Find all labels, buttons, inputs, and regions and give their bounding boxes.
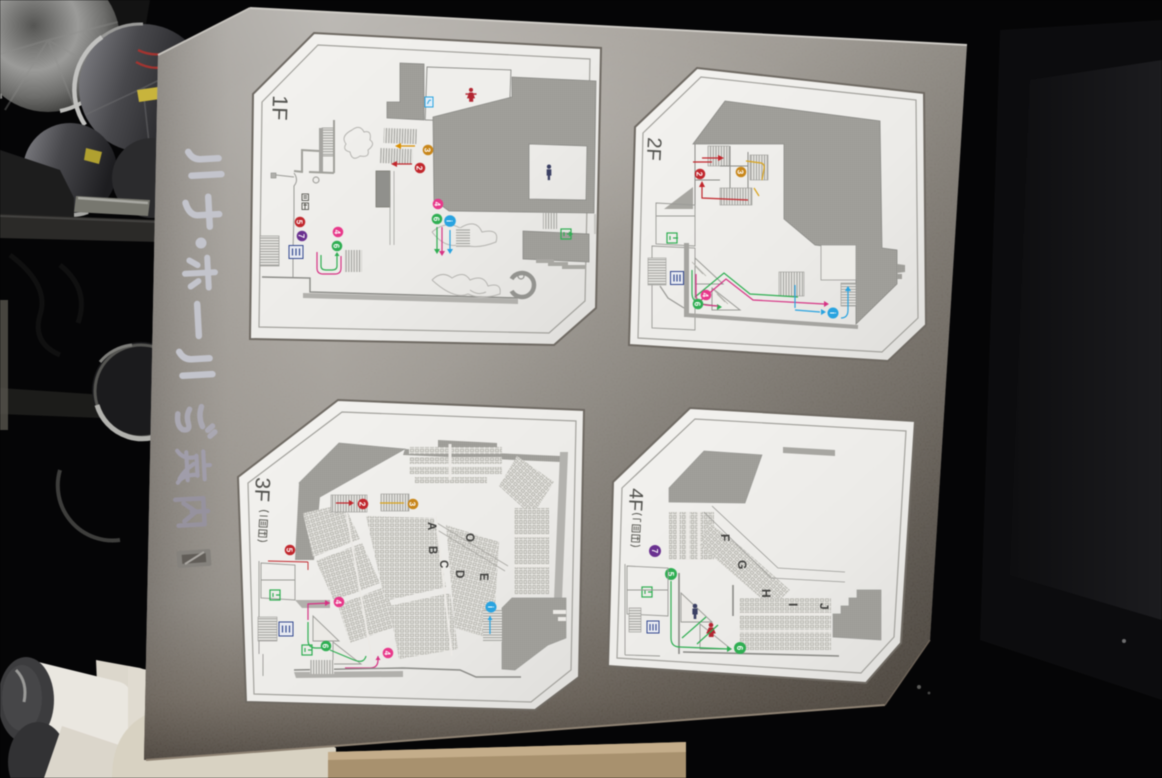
svg-text:3: 3 <box>736 170 745 175</box>
svg-text:6: 6 <box>432 217 441 222</box>
svg-text:H: H <box>759 589 773 598</box>
svg-text:3: 3 <box>423 148 432 153</box>
svg-text:G: G <box>735 560 749 569</box>
svg-text:3F: 3F <box>250 477 274 503</box>
svg-text:C: C <box>437 560 449 568</box>
svg-text:3: 3 <box>408 502 417 507</box>
svg-text:6: 6 <box>693 302 702 307</box>
svg-text:2: 2 <box>695 172 704 177</box>
svg-text:E: E <box>477 573 489 581</box>
svg-text:5: 5 <box>666 572 675 577</box>
svg-text:1F: 1F <box>267 95 292 121</box>
svg-text:i: i <box>486 606 495 608</box>
svg-text:I: I <box>786 603 800 606</box>
svg-text:4: 4 <box>701 293 710 298</box>
svg-text:6: 6 <box>332 244 341 249</box>
svg-text:O: O <box>463 533 475 542</box>
svg-text:D: D <box>453 570 465 578</box>
svg-text:J: J <box>817 603 831 610</box>
svg-text:4: 4 <box>334 600 343 605</box>
svg-text:i: i <box>828 312 837 314</box>
svg-text:4: 4 <box>433 202 442 207</box>
svg-text:7: 7 <box>297 234 306 239</box>
svg-text:5: 5 <box>285 548 294 553</box>
svg-text:7: 7 <box>650 549 659 554</box>
svg-text:4: 4 <box>383 651 392 656</box>
svg-text:2F: 2F <box>642 137 665 161</box>
svg-text:B: B <box>426 546 438 554</box>
svg-text:4: 4 <box>333 230 342 235</box>
svg-text:F: F <box>718 534 732 541</box>
svg-text:6: 6 <box>735 646 744 651</box>
svg-text:5: 5 <box>295 220 304 225</box>
svg-text:4F: 4F <box>624 488 647 512</box>
svg-text:i: i <box>445 220 454 222</box>
svg-text:A: A <box>425 522 437 530</box>
svg-text:6: 6 <box>321 644 330 649</box>
svg-text:2: 2 <box>358 502 367 507</box>
svg-text:2: 2 <box>415 166 424 171</box>
